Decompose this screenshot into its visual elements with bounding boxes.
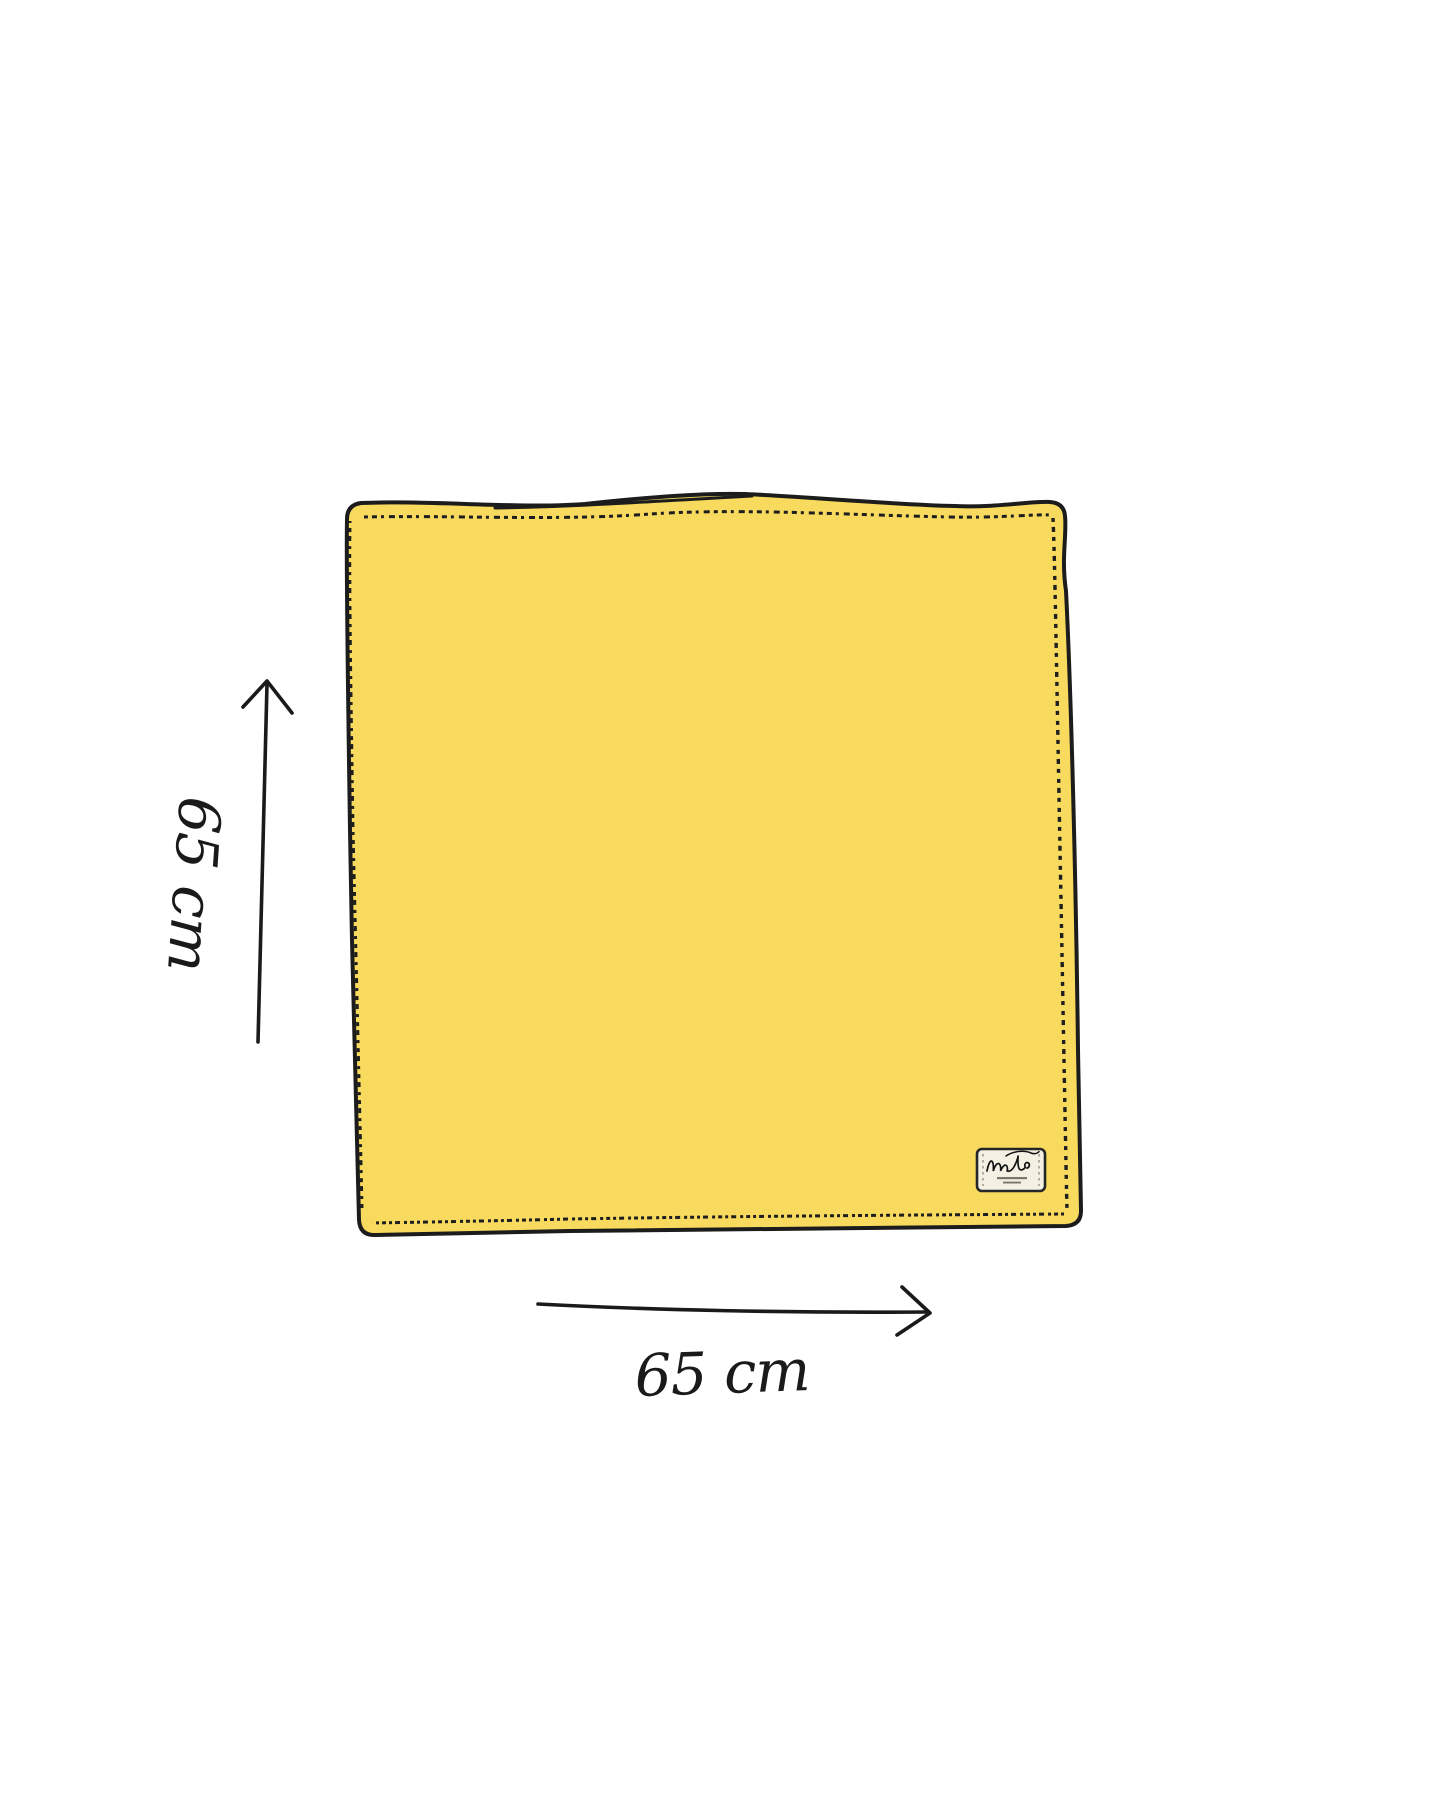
illustration-canvas: 65 cm 65 cm <box>0 0 1445 1806</box>
care-label-text-line-1 <box>997 1177 1027 1179</box>
width-dimension-label: 65 cm <box>633 1336 810 1410</box>
height-arrow <box>243 681 292 1042</box>
cloth-shape <box>347 494 1081 1235</box>
height-arrow-line <box>258 684 267 1042</box>
width-arrow <box>538 1287 930 1335</box>
care-label <box>977 1149 1045 1191</box>
width-arrow-line <box>538 1304 926 1312</box>
care-label-text-line-2 <box>1003 1182 1021 1184</box>
height-dimension-label: 65 cm <box>154 794 234 973</box>
